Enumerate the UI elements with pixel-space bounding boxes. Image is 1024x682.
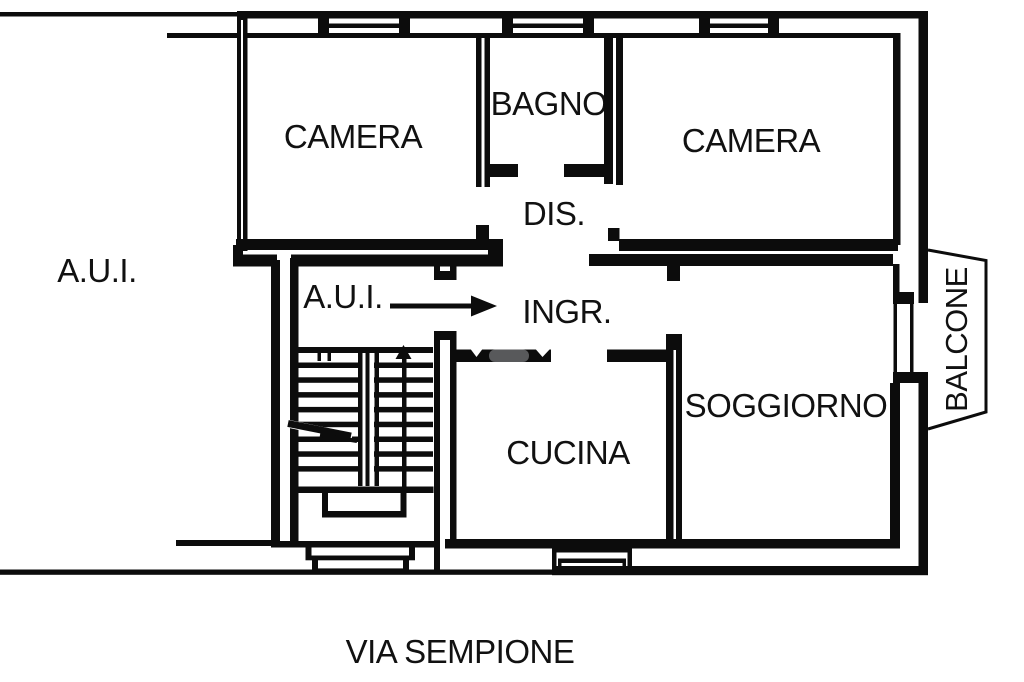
- svg-text:A.U.I.: A.U.I.: [57, 252, 137, 289]
- svg-text:A.U.I.: A.U.I.: [303, 278, 383, 315]
- svg-text:CAMERA: CAMERA: [284, 118, 423, 155]
- svg-text:BAGNO: BAGNO: [491, 85, 608, 122]
- svg-text:CAMERA: CAMERA: [682, 122, 821, 159]
- svg-text:BALCONE: BALCONE: [939, 267, 974, 412]
- svg-text:VIA SEMPIONE: VIA SEMPIONE: [346, 633, 575, 670]
- svg-text:SOGGIORNO: SOGGIORNO: [685, 387, 888, 424]
- svg-text:INGR.: INGR.: [522, 293, 611, 330]
- svg-text:CUCINA: CUCINA: [506, 434, 630, 471]
- svg-text:DIS.: DIS.: [523, 195, 585, 232]
